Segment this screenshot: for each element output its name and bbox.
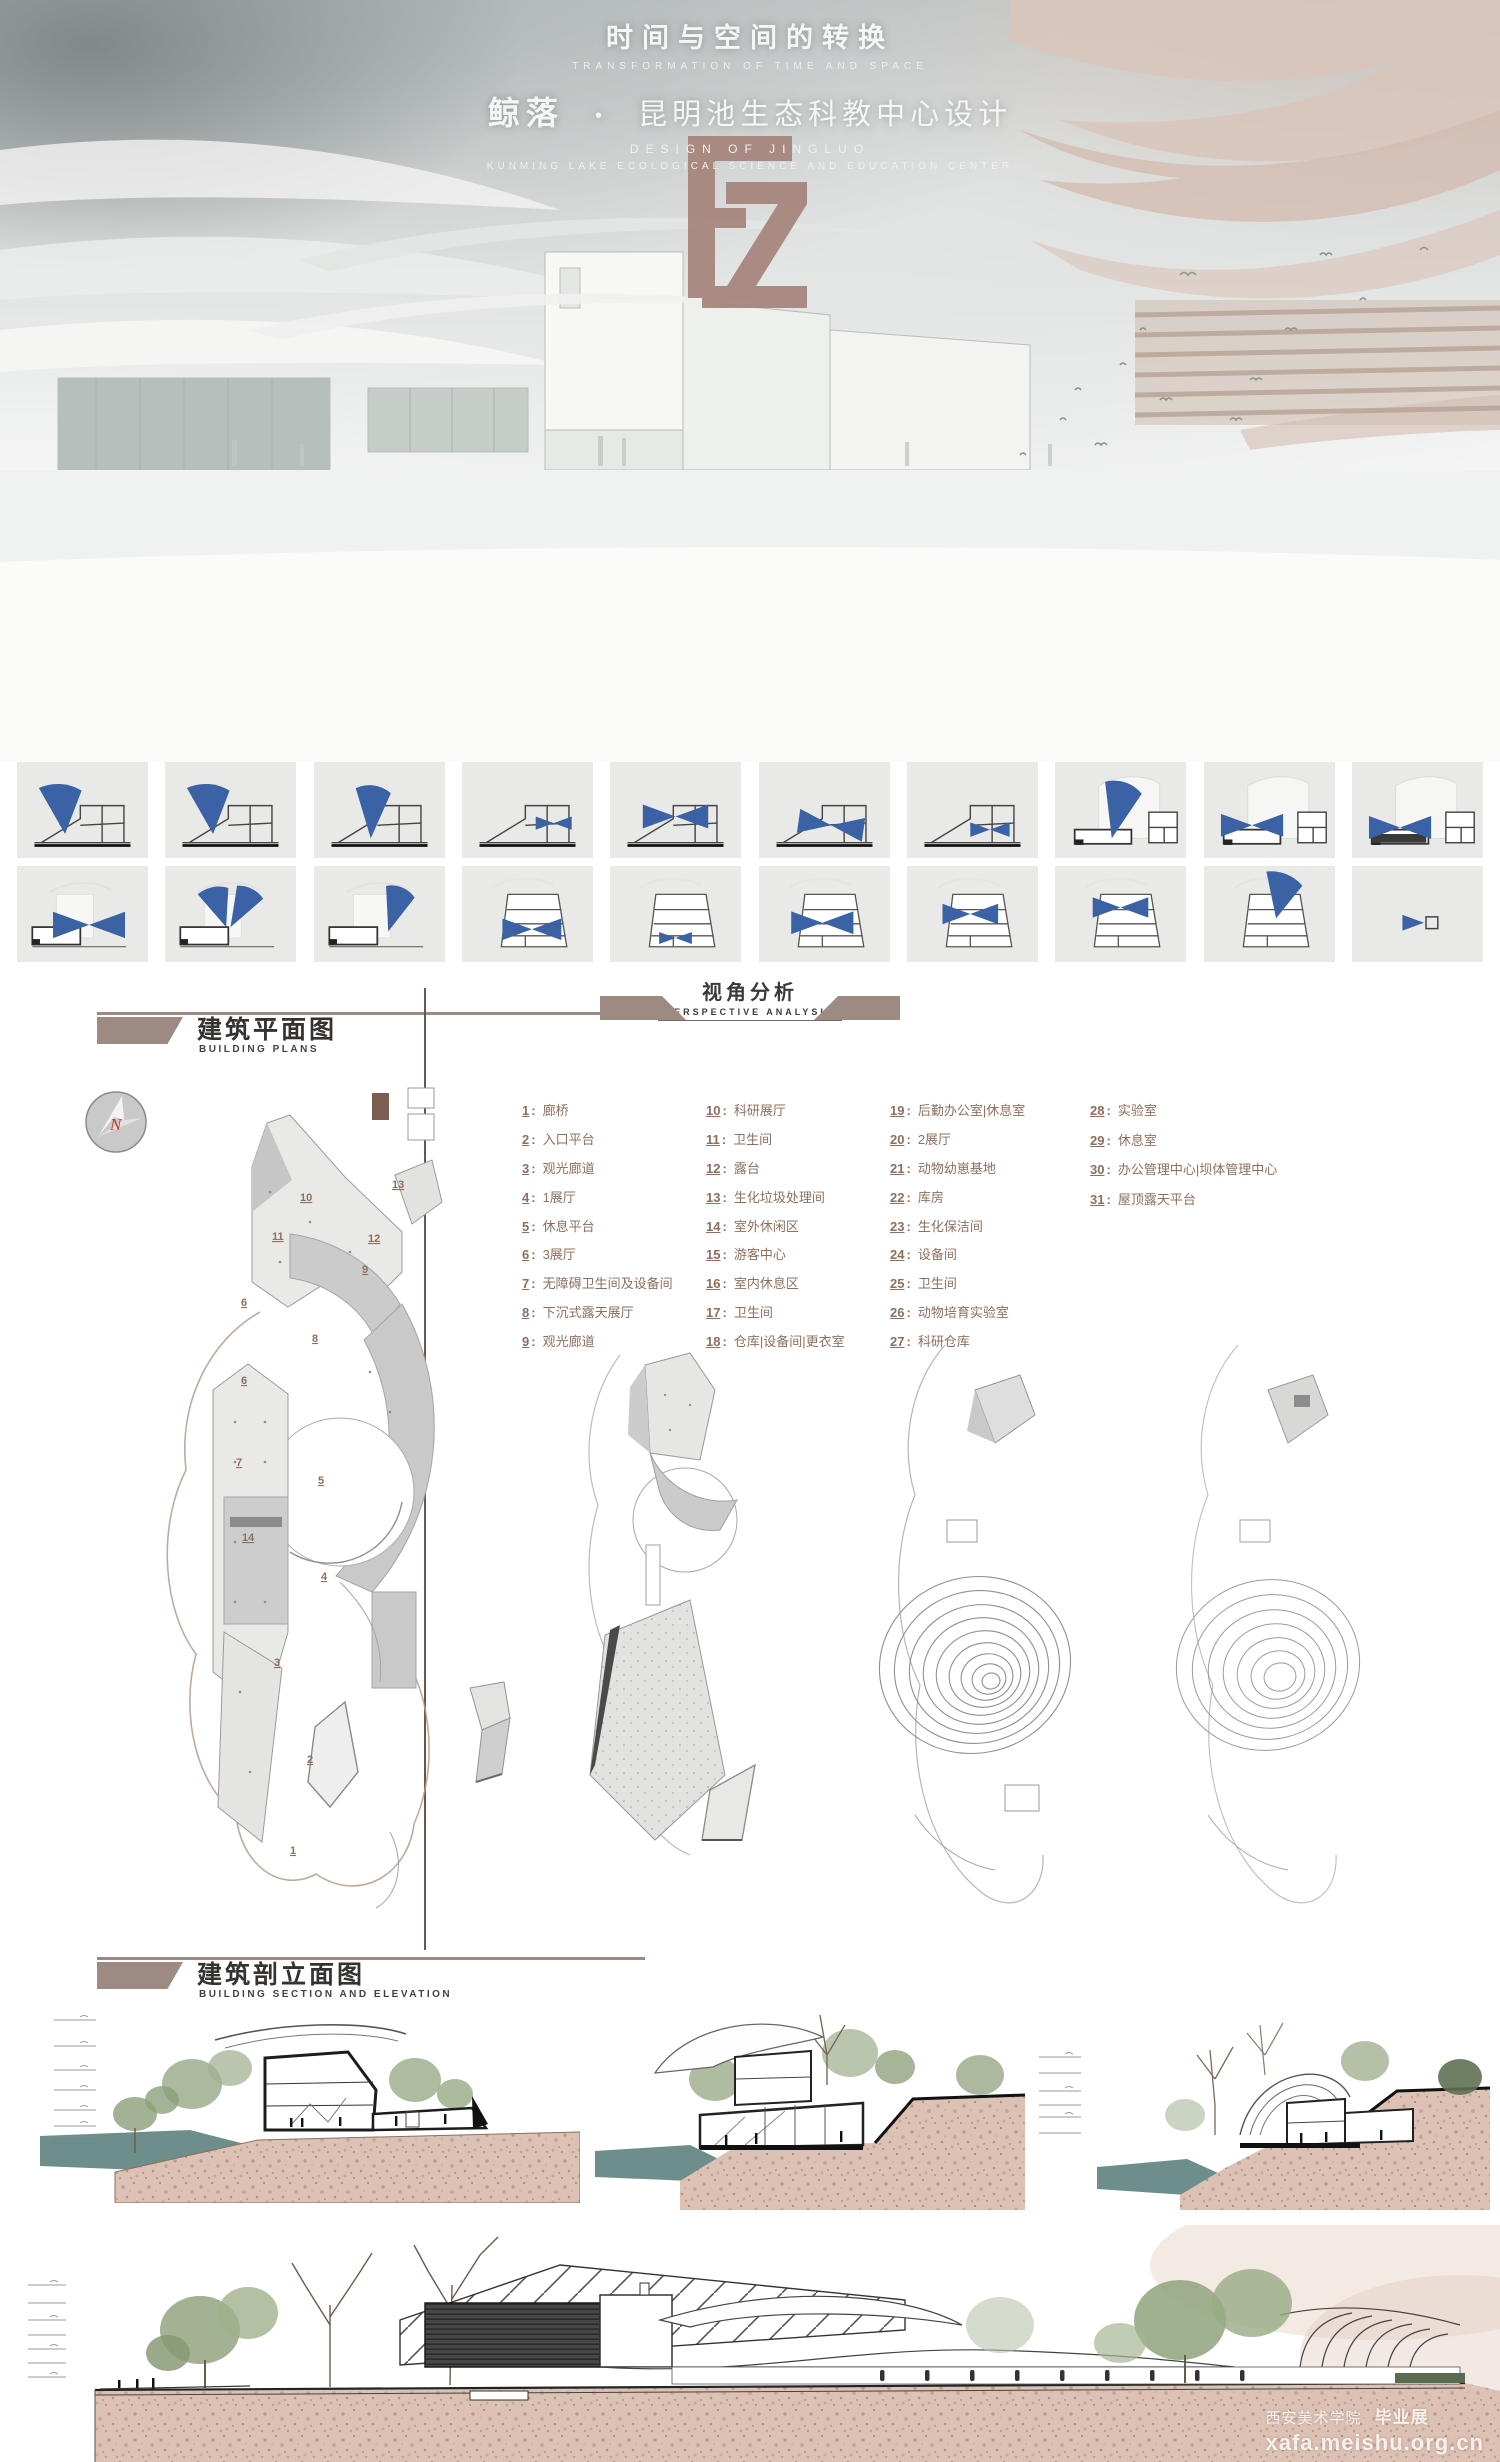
view-arrow-icon — [1352, 866, 1483, 962]
watermark-site: xafa.meishu.org.cn — [1265, 2430, 1484, 2456]
perspective-analysis-banner: 视角分析 PERSPECTIVE ANALYSIS — [600, 976, 900, 1022]
perspective-thumbnail-17 — [907, 866, 1038, 962]
perspective-thumbnail-9 — [1204, 762, 1335, 858]
sections-title-zh: 建筑剖立面图 — [197, 1955, 365, 1991]
watermark-school: 西安美术学院 — [1265, 2410, 1361, 2427]
perspective-thumbnail-1 — [17, 762, 148, 858]
view-fan-icon — [165, 762, 296, 858]
header-rule — [97, 1012, 645, 1015]
view-fan-pair-icon — [165, 866, 296, 962]
legend-item-24: 24:设备间 — [890, 1244, 1090, 1273]
plan-room-number: 6 — [241, 1297, 247, 1309]
plan-room-number: 14 — [242, 1532, 255, 1544]
view-bowtie-icon — [610, 866, 741, 962]
compass-n-label: N — [109, 1115, 123, 1134]
plan-room-number: 10 — [300, 1192, 312, 1204]
floor-plan-fragment — [452, 1678, 527, 1793]
legend-item-7: 7:无障碍卫生间及设备间 — [522, 1273, 706, 1302]
legend-item-11: 11:卫生间 — [706, 1129, 890, 1158]
legend-item-20: 20:2展厅 — [890, 1129, 1090, 1158]
legend-item-12: 12:露台 — [706, 1158, 890, 1187]
legend-item-26: 26:动物培育实验室 — [890, 1302, 1090, 1331]
plan-room-number: 1 — [290, 1845, 296, 1857]
section-drawing-2 — [595, 1995, 1025, 2210]
legend-item-23: 23:生化保洁间 — [890, 1216, 1090, 1245]
page-title-en: TRANSFORMATION OF TIME AND SPACE — [0, 61, 1500, 72]
banner-underline — [658, 1020, 842, 1021]
view-bowtie-icon — [462, 762, 593, 858]
legend-item-22: 22:库房 — [890, 1187, 1090, 1216]
view-bowtie-icon — [1352, 762, 1483, 858]
legend-item-15: 15:游客中心 — [706, 1244, 890, 1273]
perspective-thumbnail-12 — [165, 866, 296, 962]
view-bowtie-icon — [1055, 866, 1186, 962]
view-bowtie-icon — [759, 866, 890, 962]
view-cone-icon — [314, 762, 445, 858]
watermark-exhibition: 毕业展 — [1375, 2408, 1429, 2427]
legend-column: 28:实验室29:休息室30:办公管理中心|坝体管理中心31:屋顶露天平台 — [1090, 1100, 1370, 1360]
perspective-thumbnail-row-1 — [0, 762, 1500, 858]
floor-plan-3 — [855, 1335, 1095, 1945]
legend-item-17: 17:卫生间 — [706, 1302, 890, 1331]
section-drawing-1 — [40, 1998, 580, 2203]
legend-item-31: 31:屋顶露天平台 — [1090, 1189, 1370, 1219]
legend-item-4: 4:1展厅 — [522, 1187, 706, 1216]
view-fan-icon — [1204, 866, 1335, 962]
project-subtitle-en2: KUNMING LAKE ECOLOGICAL SCIENCE AND EDUC… — [0, 161, 1500, 172]
plan-room-number: 3 — [274, 1657, 280, 1669]
legend-item-16: 16:室内休息区 — [706, 1273, 890, 1302]
legend-item-5: 5:休息平台 — [522, 1216, 706, 1245]
section-drawing-3 — [1035, 1995, 1490, 2210]
header-mark — [97, 1017, 183, 1044]
view-bowtie-icon — [907, 866, 1038, 962]
view-bowtie-icon — [610, 762, 741, 858]
title-block: 时间与空间的转换 TRANSFORMATION OF TIME AND SPAC… — [0, 16, 1500, 172]
north-compass: N — [84, 1090, 148, 1154]
plans-title-zh: 建筑平面图 — [197, 1010, 337, 1046]
project-title: 鲸落 • 昆明池生态科教中心设计 — [0, 88, 1500, 134]
legend-item-21: 21:动物幼崽基地 — [890, 1158, 1090, 1187]
title-separator-dot: • — [595, 105, 607, 127]
plan-room-number: 13 — [392, 1179, 404, 1191]
legend-item-30: 30:办公管理中心|坝体管理中心 — [1090, 1159, 1370, 1189]
watermark: 西安美术学院 毕业展 xafa.meishu.org.cn — [1265, 2403, 1484, 2456]
legend-item-6: 6:3展厅 — [522, 1244, 706, 1273]
perspective-thumbnail-7 — [907, 762, 1038, 858]
presentation-board: 时间与空间的转换 TRANSFORMATION OF TIME AND SPAC… — [0, 0, 1500, 2462]
legend-column: 1:廊桥2:入口平台3:观光廊道4:1展厅5:休息平台6:3展厅7:无障碍卫生间… — [522, 1100, 706, 1360]
perspective-thumbnail-11 — [17, 866, 148, 962]
legend-column: 10:科研展厅11:卫生间12:露台13:生化垃圾处理间14:室外休闲区15:游… — [706, 1100, 890, 1360]
project-subtitle-en1: DESIGN OF JINGLUO — [0, 142, 1500, 156]
watermark-line1: 西安美术学院 毕业展 — [1265, 2403, 1484, 2428]
plan-legend: 1:廊桥2:入口平台3:观光廊道4:1展厅5:休息平台6:3展厅7:无障碍卫生间… — [522, 1100, 1382, 1360]
perspective-thumbnail-14 — [462, 866, 593, 962]
perspective-thumbnail-8 — [1055, 762, 1186, 858]
view-bowtie-icon — [1204, 762, 1335, 858]
perspective-thumbnail-18 — [1055, 866, 1186, 962]
project-desc-zh: 昆明池生态科教中心设计 — [638, 99, 1012, 131]
perspective-thumbnail-2 — [165, 762, 296, 858]
plan-room-number: 11 — [272, 1231, 284, 1243]
header-mark — [97, 1962, 183, 1989]
view-fan-icon — [17, 762, 148, 858]
view-cone-icon — [1055, 762, 1186, 858]
perspective-thumbnail-13 — [314, 866, 445, 962]
legend-column: 19:后勤办公室|休息室20:2展厅21:动物幼崽基地22:库房23:生化保洁间… — [890, 1100, 1090, 1360]
plan-room-number: 4 — [321, 1571, 328, 1583]
perspective-thumbnail-16 — [759, 866, 890, 962]
plan-room-number: 9 — [362, 1264, 368, 1276]
view-bowtie-icon — [759, 762, 890, 858]
legend-item-14: 14:室外休闲区 — [706, 1216, 890, 1245]
perspective-thumbnail-6 — [759, 762, 890, 858]
perspective-thumbnail-20 — [1352, 866, 1483, 962]
plan-room-number: 8 — [312, 1333, 318, 1345]
legend-item-25: 25:卫生间 — [890, 1273, 1090, 1302]
legend-item-10: 10:科研展厅 — [706, 1100, 890, 1129]
legend-item-19: 19:后勤办公室|休息室 — [890, 1100, 1090, 1129]
plan-room-number: 12 — [368, 1233, 380, 1245]
legend-item-29: 29:休息室 — [1090, 1130, 1370, 1160]
legend-item-3: 3:观光廊道 — [522, 1158, 706, 1187]
plan-room-number: 7 — [236, 1457, 242, 1469]
legend-item-2: 2:入口平台 — [522, 1129, 706, 1158]
legend-item-13: 13:生化垃圾处理间 — [706, 1187, 890, 1216]
perspective-thumbnail-15 — [610, 866, 741, 962]
floor-plan-1: 13101112986675144321 — [140, 1072, 470, 1962]
perspective-thumbnail-19 — [1204, 866, 1335, 962]
legend-item-1: 1:廊桥 — [522, 1100, 706, 1129]
floor-plan-2 — [550, 1335, 790, 1915]
perspective-thumbnail-3 — [314, 762, 445, 858]
perspective-thumbnail-row-2 — [0, 866, 1500, 962]
legend-item-28: 28:实验室 — [1090, 1100, 1370, 1130]
plans-title-en: BUILDING PLANS — [199, 1044, 319, 1055]
plan-room-number: 6 — [241, 1375, 247, 1387]
page-title-zh: 时间与空间的转换 — [0, 16, 1500, 55]
floor-plan-4 — [1148, 1335, 1388, 1945]
perspective-thumbnail-4 — [462, 762, 593, 858]
perspective-thumbnail-5 — [610, 762, 741, 858]
view-bowtie-icon — [907, 762, 1038, 858]
plan-room-number: 5 — [318, 1475, 324, 1487]
view-bowtie-icon — [17, 866, 148, 962]
plan-room-number: 2 — [307, 1754, 313, 1766]
legend-item-8: 8:下沉式露天展厅 — [522, 1302, 706, 1331]
view-cone-icon — [314, 866, 445, 962]
header-rule — [97, 1957, 645, 1960]
view-bowtie-icon — [462, 866, 593, 962]
project-name-zh: 鲸落 — [488, 95, 564, 131]
perspective-thumbnail-10 — [1352, 762, 1483, 858]
